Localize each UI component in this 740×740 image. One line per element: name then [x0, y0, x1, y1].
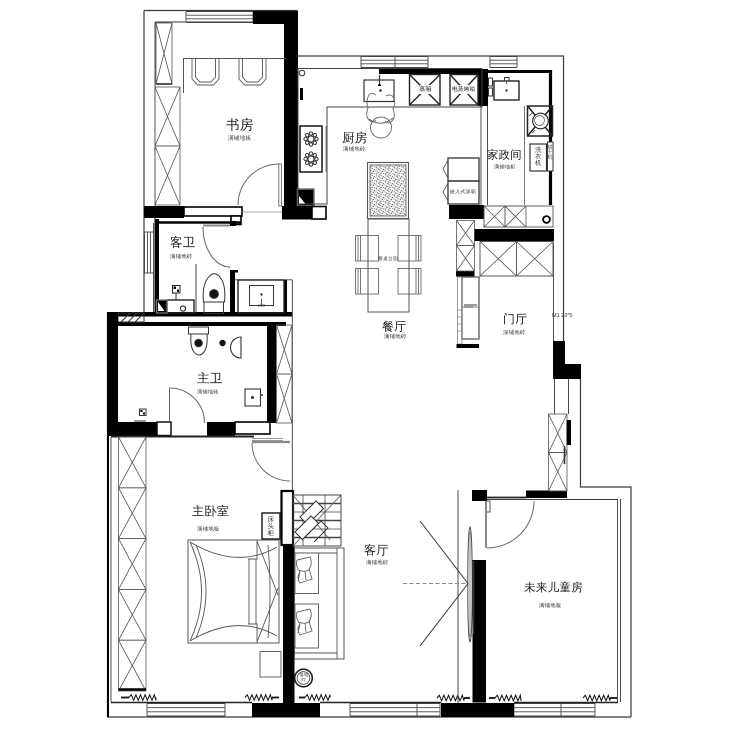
svg-text:M1 23*5: M1 23*5	[552, 313, 573, 319]
